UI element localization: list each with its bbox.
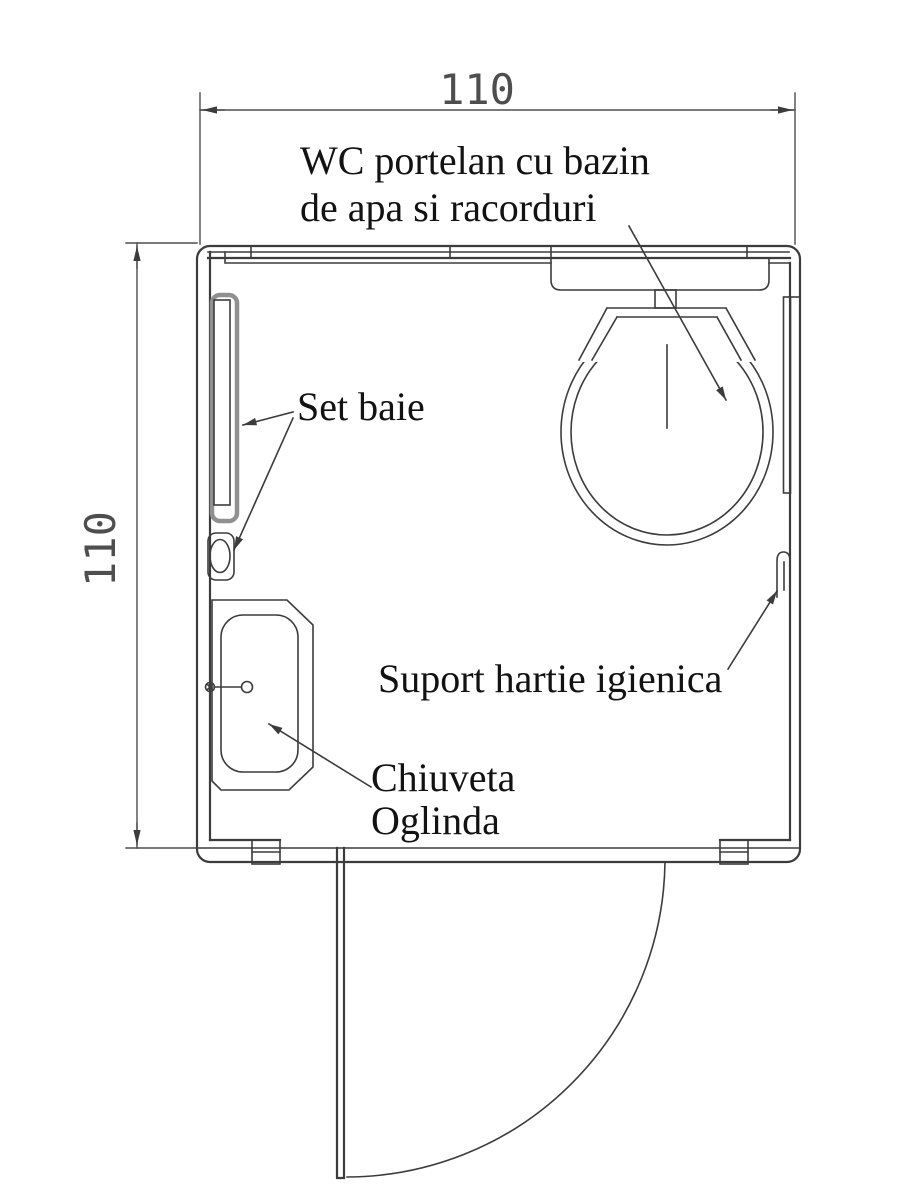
leader-bath-set-soap [234,418,293,550]
soap-holder-basin [210,540,230,573]
toilet [551,258,773,545]
label-paper-holder: Suport hartie igienica [378,656,723,701]
label-toilet-line1: WC portelan cu bazin [300,138,650,183]
sink [206,600,314,790]
door-leaf [337,848,344,1178]
door-jamb-left [252,840,280,864]
dimension-left-value: 110 [76,511,125,587]
label-sink-line2: Oglinda [371,798,500,843]
dimension-top-value: 110 [439,65,515,114]
label-bath-set: Set baie [297,384,425,429]
mirror-panel-inner [214,300,230,505]
dimension-left: 110 [76,243,197,848]
door-swing-arc [347,862,665,1177]
sink-basin [221,615,298,772]
paper-holder [777,552,790,597]
floor-plan-svg: 110 110 [0,0,920,1201]
toilet-cistern [551,258,769,290]
door-jamb-right [720,840,748,864]
label-sink-line1: Chiuveta [371,755,516,800]
door [337,848,665,1178]
label-toilet-line2: de apa si racorduri [300,185,597,230]
mirror-panel-outer [212,295,237,521]
leader-sink [269,724,371,787]
leader-paper-holder [728,591,777,669]
labels: WC portelan cu bazin de apa si racorduri… [297,138,723,843]
floor-plan-canvas: 110 110 [0,0,920,1201]
bath-set [208,295,237,580]
leader-bath-set-panel [243,412,293,425]
